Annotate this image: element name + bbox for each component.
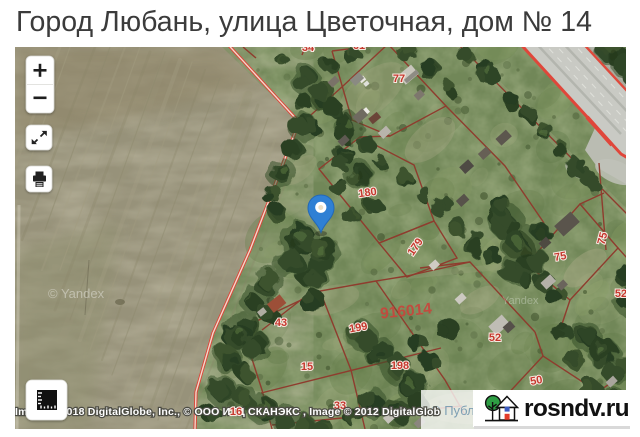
svg-text:15: 15: [301, 361, 313, 373]
svg-text:52: 52: [615, 288, 627, 300]
svg-text:© Yandex: © Yandex: [48, 286, 105, 301]
svg-text:75: 75: [553, 250, 567, 264]
svg-text:50: 50: [529, 374, 543, 388]
svg-text:77: 77: [393, 73, 405, 85]
svg-text:rosndv.ru: rosndv.ru: [524, 395, 629, 422]
svg-text:180: 180: [358, 186, 378, 200]
svg-text:Yandex: Yandex: [502, 295, 539, 307]
svg-text:43: 43: [275, 317, 287, 329]
svg-text:34: 34: [302, 42, 315, 54]
svg-text:61: 61: [353, 40, 365, 52]
svg-text:16: 16: [230, 406, 242, 418]
svg-text:198: 198: [391, 360, 409, 372]
svg-text:Image © 2018 DigitalGlobe, Inc: Image © 2018 DigitalGlobe, Inc., © ООО И…: [15, 406, 440, 418]
svg-text:52: 52: [489, 332, 501, 344]
